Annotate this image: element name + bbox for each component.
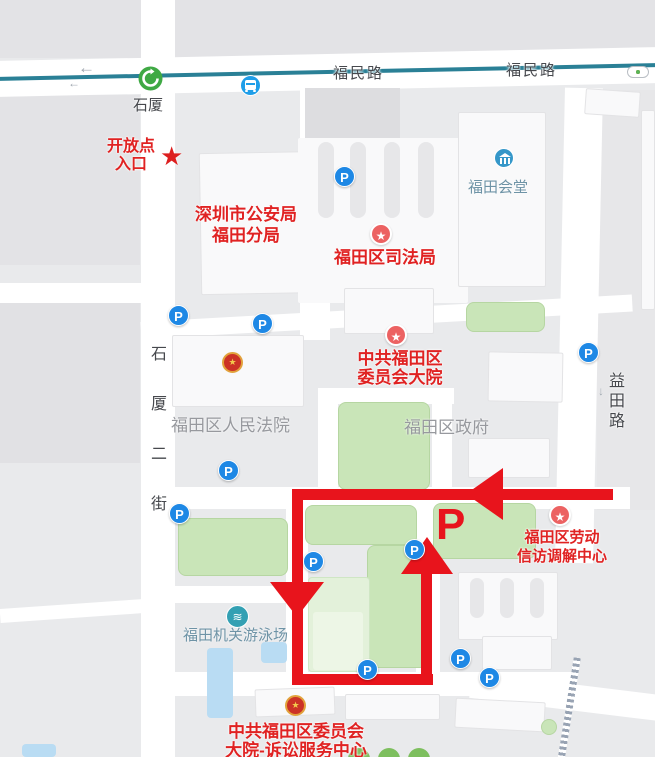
road-label-yitian: 益 田 路 <box>608 372 626 432</box>
building <box>305 88 400 138</box>
poi-label-police: 深圳市公安局 福田分局 <box>185 204 307 246</box>
poi-star-committee-icon[interactable]: ★ <box>385 324 407 346</box>
parking-icon[interactable]: P <box>578 342 599 363</box>
parking-rows <box>470 578 484 618</box>
poi-label-committee: 中共福田区 委员会大院 <box>352 349 448 387</box>
parking-icon[interactable]: P <box>218 460 239 481</box>
poi-label-labor: 福田区劳动 信访调解中心 <box>510 528 614 566</box>
road-label-fumin: 福民路 <box>333 62 384 83</box>
swim-glyph: ≋ <box>232 610 242 624</box>
parking-rows <box>318 142 334 218</box>
road-horizontal <box>0 283 141 303</box>
swimming-pool <box>261 642 287 663</box>
city-block <box>0 303 140 463</box>
building-futian-hall <box>458 112 546 287</box>
road-vertical <box>318 390 338 490</box>
parking-icon[interactable]: P <box>479 667 500 688</box>
poi-label-court: 福田区人民法院 <box>171 411 290 436</box>
route-right-segment <box>421 560 432 685</box>
poi-label-swim: 福田机关游泳场 <box>183 624 288 645</box>
parking-icon[interactable]: P <box>404 539 425 560</box>
building <box>454 698 545 733</box>
poi-label-entrance: 开放点 入口 <box>96 138 166 174</box>
bus-glyph <box>245 90 248 92</box>
metro-station-icon[interactable] <box>138 66 163 91</box>
route-parking-mark: P <box>436 500 465 550</box>
green-area <box>178 518 288 576</box>
bus-stop-icon[interactable] <box>240 75 261 96</box>
parking-icon[interactable]: P <box>252 313 273 334</box>
poi-label-hall: 福田会堂 <box>468 176 528 197</box>
watermark-blob <box>378 748 400 757</box>
building-on-lawn <box>313 612 363 670</box>
city-block <box>0 95 140 265</box>
road-label-shixia-2nd: 石 厦 二 街 <box>150 330 168 530</box>
poi-label-justice: 福田区司法局 <box>330 247 440 268</box>
poi-label-line: 深圳市公安局 <box>185 204 307 225</box>
road-direction-arrow: ← <box>68 76 80 90</box>
parking-icon[interactable]: P <box>334 166 355 187</box>
national-emblem-icon[interactable]: ★ <box>222 352 243 373</box>
swimming-pool <box>22 744 56 757</box>
poi-label-government: 福田区政府 <box>404 413 489 438</box>
building-government <box>488 351 564 402</box>
building <box>482 636 552 670</box>
green-area <box>541 719 557 735</box>
parking-icon[interactable]: P <box>450 648 471 669</box>
road-vertical <box>432 390 452 490</box>
parking-rows <box>530 578 544 618</box>
hall-icon[interactable] <box>494 148 514 168</box>
building <box>641 110 655 310</box>
route-arrow-down <box>270 582 324 617</box>
bus-glyph <box>246 83 255 85</box>
poi-label-line: 委员会大院 <box>352 368 448 387</box>
poi-label-line: 入口 <box>96 156 166 174</box>
parking-rows <box>384 142 400 218</box>
parking-icon[interactable]: P <box>169 503 190 524</box>
hall-glyph <box>499 153 511 157</box>
poi-star-justice-icon[interactable]: ★ <box>370 223 392 245</box>
building <box>345 694 440 720</box>
poi-star-labor-icon[interactable]: ★ <box>549 504 571 526</box>
road-direction-arrow: ← <box>78 58 95 78</box>
metro-station-label: 石厦 <box>133 94 163 115</box>
yitian-direction-arrow: ↓ <box>598 384 604 398</box>
poi-label-litigation: 中共福田区委员会 大院-诉讼服务中心 <box>222 722 370 757</box>
hall-glyph <box>500 158 510 164</box>
poi-label-line: 中共福田区 <box>352 349 448 368</box>
poi-label-line: 开放点 <box>96 138 166 156</box>
national-emblem-icon[interactable]: ★ <box>285 695 306 716</box>
bus-glyph <box>253 90 256 92</box>
poi-label-line: 福田区劳动 <box>510 528 614 547</box>
building <box>584 88 641 118</box>
watermark-blob <box>408 748 430 757</box>
parking-icon[interactable]: P <box>357 659 378 680</box>
road-horizontal <box>0 599 145 623</box>
traffic-light-icon <box>627 66 649 78</box>
map-canvas: P ← ← ★ ★ ★ ★ ★ ★ ≋ P P P P P P P P P P … <box>0 0 655 757</box>
route-top-segment <box>292 489 613 500</box>
parking-rows <box>500 578 514 618</box>
poi-label-line: 福田分局 <box>185 225 307 246</box>
green-area <box>466 302 545 332</box>
poi-label-line: 中共福田区委员会 <box>222 722 370 741</box>
route-arrow-left <box>466 468 503 520</box>
parking-icon[interactable]: P <box>168 305 189 326</box>
poi-label-line: 大院-诉讼服务中心 <box>222 741 370 757</box>
parking-icon[interactable]: P <box>303 551 324 572</box>
road-label-fumin: 福民路 <box>506 59 557 80</box>
parking-rows <box>418 142 434 218</box>
bus-glyph <box>245 80 256 90</box>
poi-label-line: 信访调解中心 <box>510 547 614 566</box>
swimming-pool <box>207 648 233 718</box>
